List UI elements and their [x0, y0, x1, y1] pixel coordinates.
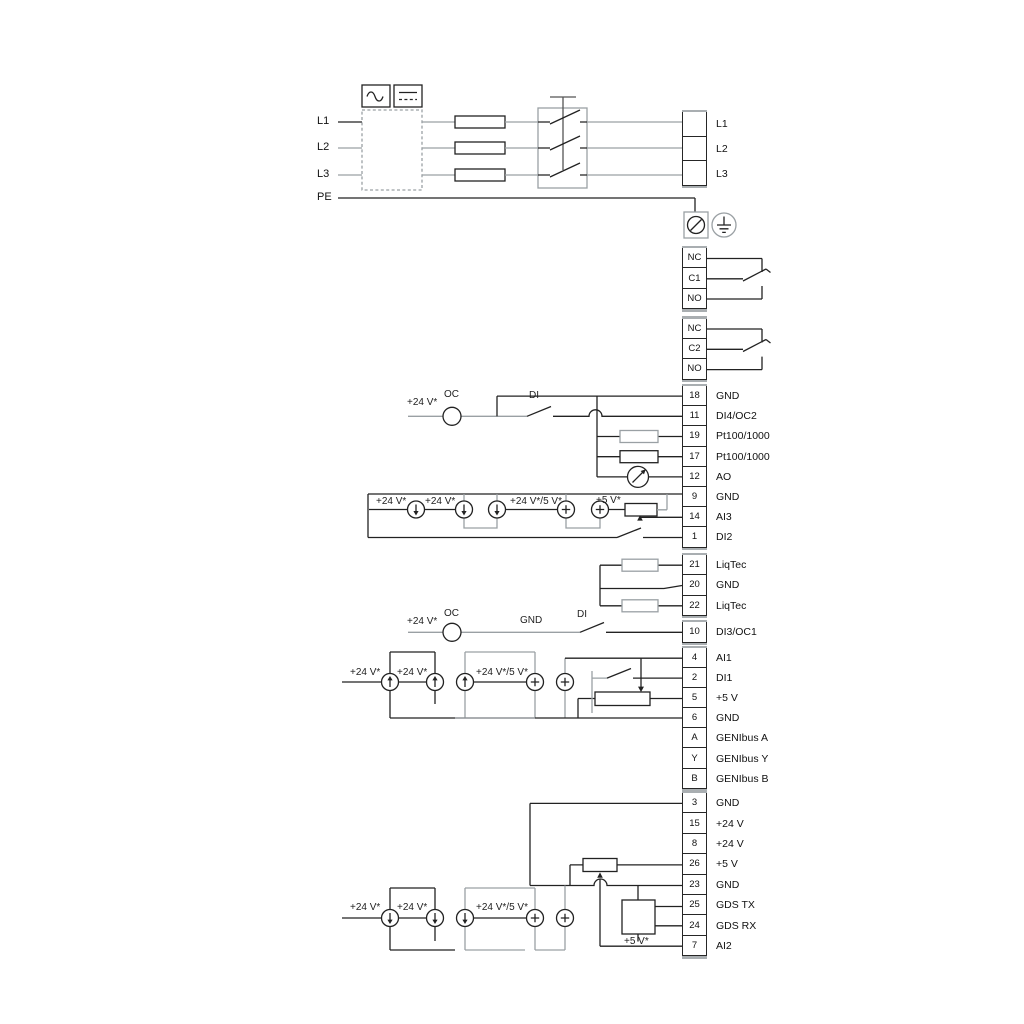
terminal-cell: NC [682, 248, 707, 268]
terminal-cell: NO [682, 289, 707, 309]
annotation-24v-5v: +24 V*/5 V* [476, 667, 528, 678]
potentiometer-symbol [583, 859, 617, 872]
potentiometer-symbol [595, 692, 650, 706]
terminal-block-liqtec: 21 LiqTec 20 GND 22 LiqTec [682, 555, 707, 616]
terminal-label: L3 [716, 168, 728, 180]
terminal-cell: NO [682, 359, 707, 379]
terminal-label: +24 V [716, 818, 744, 830]
annotation-24v: +24 V* [425, 496, 455, 507]
terminal-cell: 25 [682, 895, 707, 915]
open-collector-icon [443, 407, 461, 425]
terminal-row: NC [682, 319, 707, 339]
annotation-24v: +24 V* [397, 667, 427, 678]
terminal-row: 3 GND [682, 793, 707, 813]
current-source-icon [382, 674, 474, 691]
terminal-label: LiqTec [716, 600, 746, 612]
terminal-cell: 17 [682, 447, 707, 467]
terminal-label: +5 V [716, 858, 738, 870]
ac-sine-icon [362, 85, 390, 107]
terminal-cell: 21 [682, 555, 707, 575]
terminal-cell: A [682, 728, 707, 748]
terminal-cell: B [682, 769, 707, 789]
terminal-label: LiqTec [716, 559, 746, 571]
terminal-cell [682, 112, 707, 137]
terminal-label: AO [716, 471, 731, 483]
relay2-contact-symbol [707, 329, 771, 370]
terminal-block-power-out: L1 L2 L3 [682, 112, 707, 186]
terminal-cell: 3 [682, 793, 707, 813]
terminal-row: NO [682, 289, 707, 309]
terminal-cell: 10 [682, 622, 707, 643]
annotation-24v: +24 V* [376, 496, 406, 507]
mains-input-wires [338, 85, 695, 212]
terminal-cell: 20 [682, 575, 707, 595]
annotation-24v: +24 V* [350, 902, 380, 913]
terminal-row: L1 [682, 112, 707, 137]
terminal-row: A GENIbus A [682, 728, 707, 748]
terminal-row: 22 LiqTec [682, 596, 707, 616]
terminal-label: AI3 [716, 511, 732, 523]
terminal-row: C2 [682, 339, 707, 359]
terminal-label: DI4/OC2 [716, 410, 757, 422]
terminal-cell [682, 137, 707, 162]
liqtec-circuit [600, 559, 682, 612]
terminal-block-di3: 10 DI3/OC1 [682, 622, 707, 643]
annotation-5v: +5 V* [596, 495, 621, 506]
terminal-row: 9 GND [682, 487, 707, 507]
terminal-label: GDS RX [716, 920, 756, 932]
annotation-5v: +5 V* [624, 936, 649, 947]
terminal-label: GENIbus B [716, 773, 769, 785]
terminal-row: C1 [682, 268, 707, 288]
terminal-label: DI1 [716, 672, 732, 684]
di3-oc1-circuit [408, 623, 682, 642]
terminal-row: 7 AI2 [682, 936, 707, 956]
terminal-cell: 1 [682, 527, 707, 547]
terminal-cell: C2 [682, 339, 707, 359]
mains-label-l1: L1 [317, 115, 329, 127]
terminal-cell: NC [682, 319, 707, 339]
terminal-row: 25 GDS TX [682, 895, 707, 915]
terminal-row: 19 Pt100/1000 [682, 426, 707, 446]
terminal-cell: Y [682, 748, 707, 768]
terminal-label: DI3/OC1 [716, 626, 757, 638]
annotation-di: DI [577, 609, 587, 620]
terminal-label: Pt100/1000 [716, 430, 770, 442]
terminal-label: GENIbus A [716, 732, 768, 744]
terminal-block-io-bottom: 3 GND 15 +24 V 8 +24 V 26 +5 V 23 GND 25… [682, 793, 707, 956]
terminal-label: AI1 [716, 652, 732, 664]
terminal-cell: 22 [682, 596, 707, 616]
wiring-diagram: L1 L2 L3 PE L1 L2 L3 NC C1 NO NC C2 NO [0, 0, 1024, 1024]
annotation-24v: +24 V* [407, 616, 437, 627]
annotation-oc: OC [444, 389, 459, 400]
terminal-label: +24 V [716, 838, 744, 850]
terminal-label: GENIbus Y [716, 753, 768, 765]
terminal-block-io-mid: 4 AI1 2 DI1 5 +5 V 6 GND A GENIbus A Y G… [682, 648, 707, 789]
annotation-24v-5v: +24 V*/5 V* [510, 496, 562, 507]
terminal-cell: 9 [682, 487, 707, 507]
terminal-row: 6 GND [682, 708, 707, 728]
terminal-label: GND [716, 712, 739, 724]
mains-label-l3: L3 [317, 168, 329, 180]
terminal-row: NO [682, 359, 707, 379]
main-switch-symbol [538, 97, 587, 188]
terminal-row: 2 DI1 [682, 668, 707, 688]
terminal-cell: 4 [682, 648, 707, 668]
terminal-cell: 7 [682, 936, 707, 956]
terminal-row: 23 GND [682, 875, 707, 895]
terminal-label: L1 [716, 118, 728, 130]
terminal-cell: 11 [682, 406, 707, 426]
terminal-row: 5 +5 V [682, 688, 707, 708]
terminal-label: GND [716, 579, 739, 591]
terminal-label: GND [716, 390, 739, 402]
terminal-cell: 2 [682, 668, 707, 688]
terminal-row: 18 GND [682, 386, 707, 406]
terminal-row: Y GENIbus Y [682, 748, 707, 768]
annotation-24v: +24 V* [407, 397, 437, 408]
terminal-block-io-top: 18 GND 11 DI4/OC2 19 Pt100/1000 17 Pt100… [682, 386, 707, 548]
terminal-cell: 19 [682, 426, 707, 446]
terminal-row: 10 DI3/OC1 [682, 622, 707, 643]
terminal-label: AI2 [716, 940, 732, 952]
terminal-label: GDS TX [716, 899, 755, 911]
terminal-label: +5 V [716, 692, 738, 704]
terminal-row: 15 +24 V [682, 813, 707, 833]
liqtec-sensor-symbol [622, 559, 658, 571]
annotation-24v-5v: +24 V*/5 V* [476, 902, 528, 913]
liqtec-sensor-symbol [622, 600, 658, 612]
fuse-symbols [455, 116, 505, 181]
terminal-row: 26 +5 V [682, 854, 707, 874]
terminal-cell: 26 [682, 854, 707, 874]
terminal-cell: 24 [682, 915, 707, 935]
converter-box [362, 110, 422, 190]
ai1-di1-circuit [342, 652, 682, 718]
terminal-row: NC [682, 248, 707, 268]
voltage-source-icon [527, 910, 574, 927]
current-source-icon [382, 910, 474, 927]
terminal-cell: 15 [682, 813, 707, 833]
dc-line-icon [394, 85, 422, 107]
terminal-label: GND [716, 797, 739, 809]
mains-label-l2: L2 [317, 141, 329, 153]
terminal-cell: 6 [682, 708, 707, 728]
terminal-cell: C1 [682, 268, 707, 288]
terminal-row: 24 GDS RX [682, 915, 707, 935]
terminal-row: 8 +24 V [682, 834, 707, 854]
terminal-cell: 23 [682, 875, 707, 895]
terminal-block-relay1: NC C1 NO [682, 248, 707, 309]
terminal-row: 14 AI3 [682, 507, 707, 527]
wiring-svg [0, 0, 1024, 1024]
terminal-label: GND [716, 491, 739, 503]
terminal-label: L2 [716, 143, 728, 155]
terminal-label: GND [716, 879, 739, 891]
terminal-cell: 12 [682, 467, 707, 487]
terminal-row: L2 [682, 137, 707, 162]
terminal-row: 17 Pt100/1000 [682, 447, 707, 467]
pt100-sensor-symbols [597, 431, 682, 463]
terminal-cell: 18 [682, 386, 707, 406]
annotation-gnd: GND [520, 615, 542, 626]
terminal-cell [682, 161, 707, 186]
annotation-24v: +24 V* [397, 902, 427, 913]
potentiometer-symbol [625, 504, 657, 517]
pe-screw-terminal-icon [684, 212, 708, 238]
analog-output-meter-icon [597, 466, 682, 487]
voltage-source-icon [527, 674, 574, 691]
open-collector-icon [443, 623, 461, 641]
terminal-cell: 14 [682, 507, 707, 527]
terminal-cell: 8 [682, 834, 707, 854]
terminal-row: 4 AI1 [682, 648, 707, 668]
earth-ground-icon [712, 213, 736, 237]
mains-label-pe: PE [317, 191, 332, 203]
terminal-row: 12 AO [682, 467, 707, 487]
annotation-oc: OC [444, 608, 459, 619]
terminal-row: 21 LiqTec [682, 555, 707, 575]
terminal-row: B GENIbus B [682, 769, 707, 789]
ai2-gds-circuit [342, 803, 682, 950]
current-source-icon [408, 501, 506, 518]
terminal-row: 20 GND [682, 575, 707, 595]
gds-sensor-symbol [622, 900, 655, 934]
terminal-row: L3 [682, 161, 707, 186]
terminal-label: Pt100/1000 [716, 451, 770, 463]
terminal-block-relay2: NC C2 NO [682, 319, 707, 380]
terminal-cell: 5 [682, 688, 707, 708]
terminal-row: 1 DI2 [682, 527, 707, 547]
terminal-row: 11 DI4/OC2 [682, 406, 707, 426]
annotation-di: DI [529, 390, 539, 401]
relay1-contact-symbol [707, 259, 771, 300]
terminal-label: DI2 [716, 531, 732, 543]
annotation-24v: +24 V* [350, 667, 380, 678]
